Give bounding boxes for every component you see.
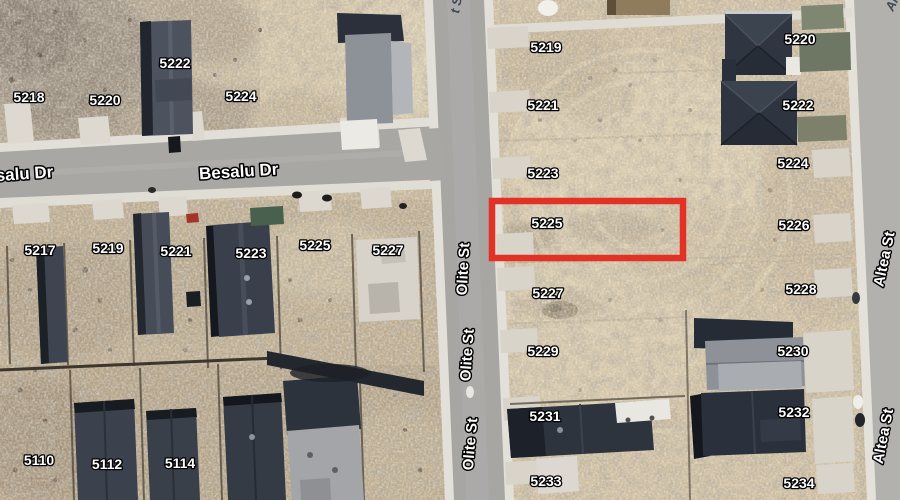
svg-text:5231: 5231 [529, 408, 560, 424]
svg-text:5225: 5225 [299, 237, 330, 253]
svg-text:5230: 5230 [777, 343, 808, 359]
svg-text:5221: 5221 [527, 97, 558, 113]
svg-text:5110: 5110 [24, 452, 55, 468]
svg-text:5223: 5223 [527, 165, 558, 181]
svg-text:Olite St: Olite St [454, 242, 474, 295]
svg-text:5218: 5218 [13, 89, 44, 105]
svg-text:5217: 5217 [24, 242, 55, 258]
svg-text:5229: 5229 [527, 343, 558, 359]
svg-text:5224: 5224 [225, 88, 256, 104]
svg-text:5114: 5114 [165, 455, 196, 471]
svg-text:5234: 5234 [783, 475, 814, 491]
svg-text:5221: 5221 [160, 243, 191, 259]
svg-text:5112: 5112 [92, 456, 123, 472]
svg-text:5226: 5226 [778, 217, 809, 233]
svg-text:5220: 5220 [784, 31, 815, 47]
svg-text:5233: 5233 [530, 473, 561, 489]
svg-text:5220: 5220 [89, 92, 120, 108]
svg-text:5223: 5223 [235, 245, 266, 261]
svg-text:5227: 5227 [532, 285, 563, 301]
svg-text:5225: 5225 [531, 215, 562, 231]
svg-text:5227: 5227 [372, 242, 403, 258]
svg-text:5219: 5219 [530, 39, 561, 55]
svg-text:5232: 5232 [778, 404, 809, 420]
svg-text:5219: 5219 [92, 240, 123, 256]
svg-text:5228: 5228 [785, 281, 816, 297]
svg-text:5224: 5224 [777, 155, 808, 171]
svg-text:5222: 5222 [159, 55, 190, 71]
svg-text:5222: 5222 [782, 97, 813, 113]
